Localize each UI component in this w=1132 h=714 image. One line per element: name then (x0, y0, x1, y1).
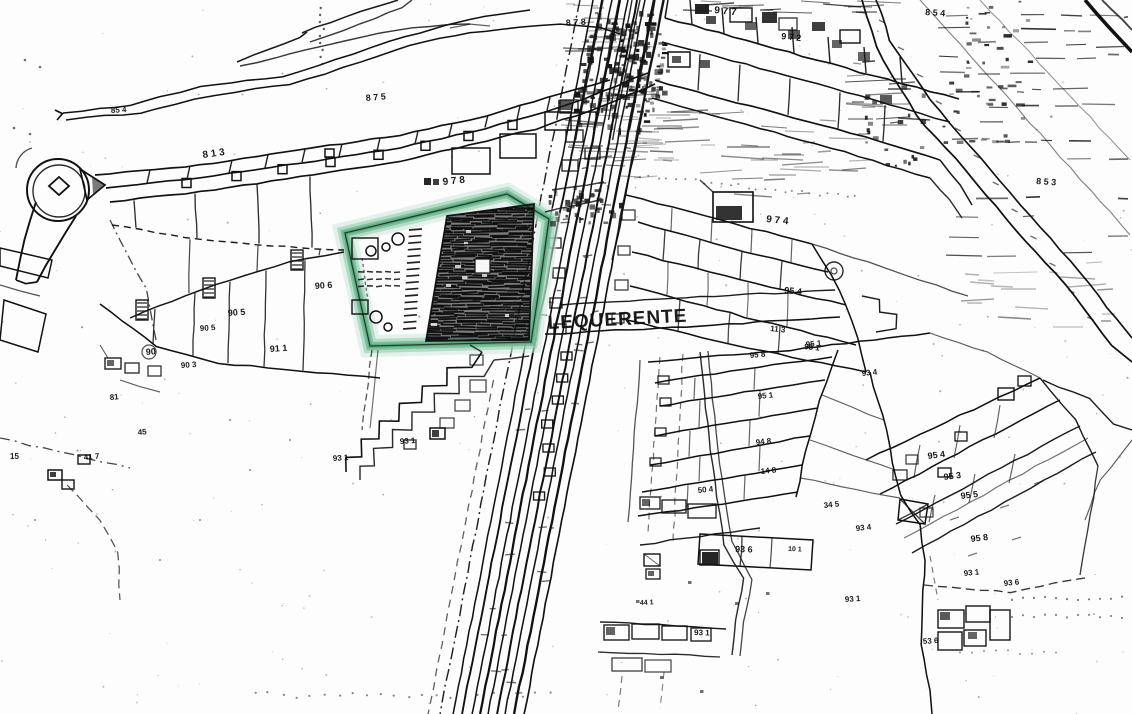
svg-text:10 1: 10 1 (788, 546, 802, 553)
svg-text:90 6: 90 6 (314, 280, 332, 291)
svg-text:93 4: 93 4 (855, 522, 872, 533)
svg-text:95 4: 95 4 (784, 285, 802, 297)
svg-text:93 1: 93 1 (400, 436, 417, 446)
svg-text:93 1: 93 1 (333, 453, 350, 463)
svg-text:91 1: 91 1 (269, 343, 287, 354)
svg-text:95 5: 95 5 (960, 489, 979, 501)
svg-text:95 8: 95 8 (749, 350, 766, 360)
svg-text:93 1: 93 1 (845, 594, 862, 604)
svg-text:44 1: 44 1 (640, 599, 654, 607)
svg-text:93 1: 93 1 (694, 628, 710, 638)
svg-text:15: 15 (10, 452, 19, 461)
svg-text:45: 45 (137, 427, 147, 437)
svg-text:93 4: 93 4 (861, 367, 878, 378)
svg-text:95 4: 95 4 (927, 449, 946, 461)
svg-text:9 7 2: 9 7 2 (781, 31, 802, 43)
svg-text:85 4: 85 4 (111, 105, 128, 115)
svg-text:90 5: 90 5 (200, 323, 217, 333)
svg-text:95 1: 95 1 (805, 339, 822, 349)
svg-text:11 3: 11 3 (770, 324, 787, 335)
svg-text:8 5 3: 8 5 3 (1036, 176, 1057, 187)
svg-text:34 5: 34 5 (823, 499, 840, 510)
svg-text:8 7 5: 8 7 5 (365, 91, 386, 103)
svg-text:95 3: 95 3 (943, 470, 962, 482)
svg-text:95 8: 95 8 (970, 532, 989, 544)
svg-text:90 3: 90 3 (181, 360, 198, 370)
svg-text:53 6: 53 6 (923, 636, 940, 646)
svg-text:14 8: 14 8 (760, 465, 777, 476)
svg-text:90 5: 90 5 (227, 307, 245, 318)
svg-text:50 4: 50 4 (697, 484, 714, 495)
svg-text:41 7: 41 7 (83, 452, 100, 462)
svg-text:94 8: 94 8 (755, 436, 772, 447)
svg-text:93 1: 93 1 (963, 567, 980, 578)
svg-text:93 6: 93 6 (1003, 577, 1020, 588)
svg-text:81: 81 (109, 392, 119, 402)
